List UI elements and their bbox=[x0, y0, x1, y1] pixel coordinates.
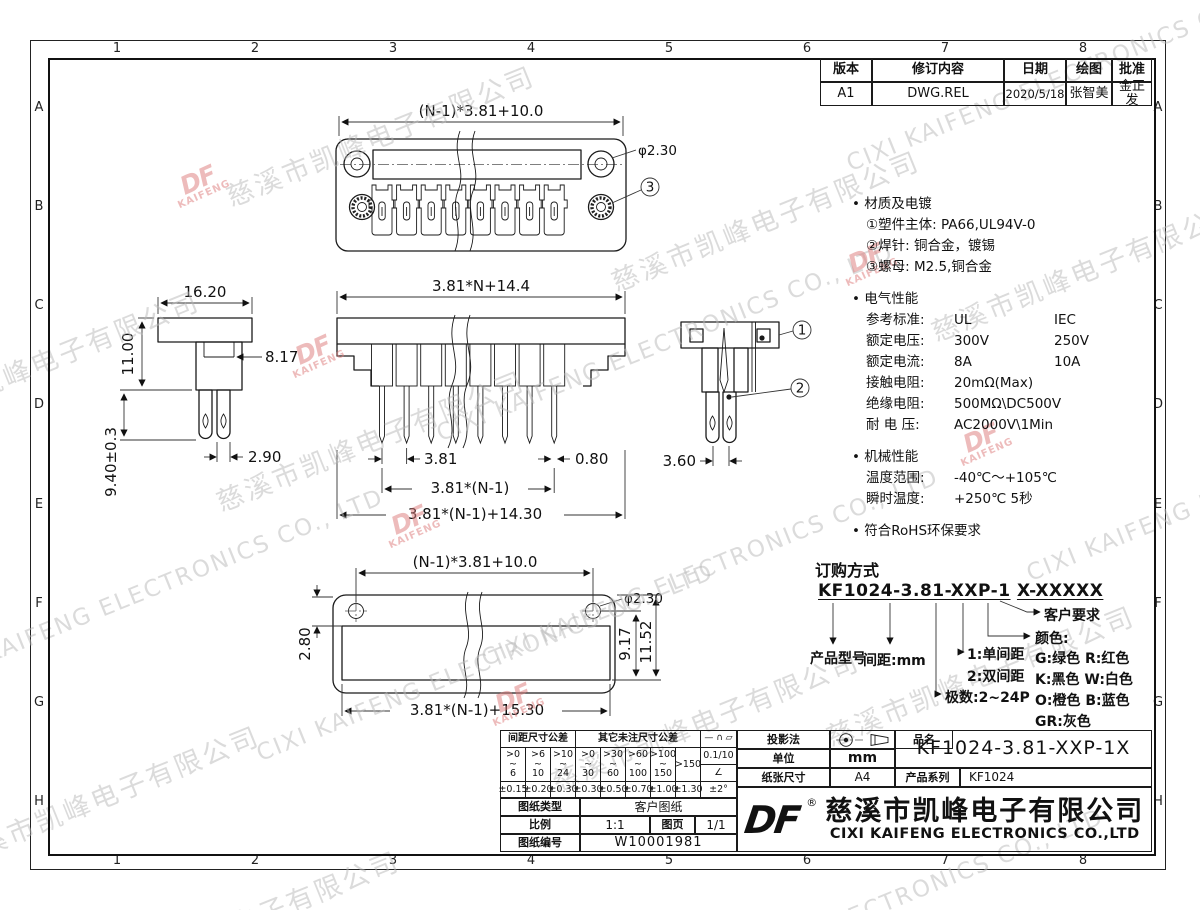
dim-section: 3.60 bbox=[663, 452, 696, 470]
tolerance-range: >150 bbox=[675, 747, 701, 782]
ordering-code-suffix: X-XXXXX bbox=[1017, 581, 1103, 601]
projection-label: 投影法 bbox=[737, 730, 830, 749]
electrical-row: 接触电阻:20mΩ(Max) bbox=[852, 373, 1154, 394]
ordering-title: 订购方式 bbox=[815, 557, 879, 581]
tolerance-value: ±0.20 bbox=[525, 781, 551, 798]
tolerance-value: ±0.30 bbox=[575, 781, 601, 798]
company-name-cn: 慈溪市凯峰电子有限公司 bbox=[825, 797, 1144, 827]
balloon-1: 1 bbox=[798, 323, 807, 339]
revision-version: A1 bbox=[820, 82, 872, 106]
revision-approved-by: 金正发 bbox=[1112, 82, 1152, 106]
spec-label: 温度范围: bbox=[866, 468, 954, 489]
tolerance-value: ±0.50 bbox=[600, 781, 626, 798]
ordering-label-customer: 客户要求 bbox=[1044, 605, 1100, 625]
angle-symbol: ∠ bbox=[700, 764, 737, 782]
dim-front-span: 3.81*(N-1) bbox=[431, 479, 510, 497]
revision-header: 版本 bbox=[820, 58, 872, 82]
material-item: ①塑件主体: PA66,UL94V-0 bbox=[852, 215, 1154, 236]
ordering-label-model: 产品型号 bbox=[810, 648, 866, 668]
revision-header: 绘图 bbox=[1066, 58, 1112, 82]
tolerance-symbols: — ∩ ▱ bbox=[700, 730, 737, 748]
dim-bottom-total: 3.81*(N-1)+15.30 bbox=[410, 701, 544, 719]
title-block: 间距尺寸公差 其它未注尺寸公差 — ∩ ▱ >0 ~ 6 >6 ~ 10 >10… bbox=[500, 730, 1152, 852]
spec-label: 绝缘电阻: bbox=[866, 394, 954, 415]
company-block: DF ® 慈溪市凯峰电子有限公司 CIXI KAIFENG ELECTRONIC… bbox=[737, 787, 1152, 852]
unit-value: mm bbox=[830, 749, 895, 768]
dim-side-top: 16.20 bbox=[184, 283, 227, 301]
revision-drawn-by: 张智美 bbox=[1066, 82, 1112, 106]
balloon-2: 2 bbox=[796, 381, 805, 397]
spec-value: 300V bbox=[954, 331, 1054, 352]
spec-value bbox=[1054, 394, 1154, 415]
series-value: KF1024 bbox=[960, 768, 1152, 787]
tolerance-range: >6 ~ 10 bbox=[525, 747, 551, 782]
view-side: 16.20 11.00 8.17 2.90 9.40±0.3 bbox=[102, 283, 298, 497]
ordering-color-option: O:橙色 B:蓝色 bbox=[1035, 690, 1130, 710]
paper-size-value: A4 bbox=[830, 768, 895, 787]
electrical-title: • 电气性能 bbox=[852, 289, 1154, 310]
paper-size-label: 纸张尺寸 bbox=[737, 768, 830, 787]
spec-value: +250℃ 5秒 bbox=[954, 489, 1154, 510]
ordering-code-main: KF1024-3.81-XXP-1 bbox=[818, 581, 1011, 601]
spec-label: 接触电阻: bbox=[866, 373, 954, 394]
drawing-number-label: 图纸编号 bbox=[500, 834, 580, 852]
part-name-label: 品名 bbox=[895, 730, 953, 749]
electrical-row: 耐 电 压:AC2000V\1Min bbox=[852, 415, 1154, 436]
tolerance-pitch-header: 间距尺寸公差 bbox=[500, 730, 576, 748]
dim-bottom-r2: 11.52 bbox=[637, 621, 655, 664]
spec-value bbox=[1054, 373, 1154, 394]
spec-value: -40℃～+105℃ bbox=[954, 468, 1154, 489]
unit-label: 单位 bbox=[737, 749, 830, 768]
ordering-label-double: 2:双间距 bbox=[967, 666, 1024, 686]
spec-label: 瞬时温度: bbox=[866, 489, 954, 510]
registered-mark: ® bbox=[806, 797, 817, 809]
material-item: ②焊针: 铜合金，镀锡 bbox=[852, 236, 1154, 257]
spec-notes: • 材质及电镀 ①塑件主体: PA66,UL94V-0 ②焊针: 铜合金，镀锡 … bbox=[852, 194, 1154, 542]
spec-label: 参考标准: bbox=[866, 310, 954, 331]
tolerance-flatness: 0.1/10 bbox=[700, 747, 737, 765]
revision-content: DWG.REL bbox=[872, 82, 1004, 106]
ordering-label-color: 颜色: bbox=[1035, 628, 1069, 648]
drawing-type-label: 图纸类型 bbox=[500, 798, 580, 816]
kaifeng-logo: DF bbox=[742, 801, 801, 839]
dim-side-pin: 2.90 bbox=[248, 448, 281, 466]
tolerance-value: ±0.15 bbox=[500, 781, 526, 798]
sheet-label: 图页 bbox=[650, 816, 695, 834]
electrical-row: 额定电压:300V250V bbox=[852, 331, 1154, 352]
tolerance-other-header: 其它未注尺寸公差 bbox=[575, 730, 701, 748]
material-title: • 材质及电镀 bbox=[852, 194, 1154, 215]
tolerance-angle: ±2° bbox=[700, 781, 737, 798]
spec-value: 500MΩ\DC500V bbox=[954, 394, 1054, 415]
revision-table: 版本 修订内容 日期 绘图 批准 A1 DWG.REL 2020/5/18 张智… bbox=[820, 58, 1152, 106]
spec-value: UL bbox=[954, 310, 1054, 331]
company-name-en: CIXI KAIFENG ELECTRONICS CO.,LTD bbox=[830, 827, 1140, 842]
dim-front-top: 3.81*N+14.4 bbox=[432, 277, 530, 295]
sheet-value: 1/1 bbox=[695, 816, 737, 834]
tolerance-value: ±0.30 bbox=[550, 781, 576, 798]
dim-bottom-top: (N-1)*3.81+10.0 bbox=[413, 553, 538, 571]
spec-value: 20mΩ(Max) bbox=[954, 373, 1054, 394]
view-front: 3.81*N+14.4 3.81 0.80 3.81*(N-1) 3.81*(N… bbox=[337, 277, 625, 523]
mechanical-row: 温度范围:-40℃～+105℃ bbox=[852, 468, 1154, 489]
spec-label: 额定电流: bbox=[866, 352, 954, 373]
tolerance-range: >0 ~ 30 bbox=[575, 747, 601, 782]
tolerance-range: >0 ~ 6 bbox=[500, 747, 526, 782]
ordering-code: KF1024-3.81-XXP-1 X-XXXXX bbox=[818, 581, 1103, 601]
revision-header: 修订内容 bbox=[872, 58, 1004, 82]
dim-plan-hole: φ2.30 bbox=[638, 143, 677, 159]
tolerance-range: >60 ~ 100 bbox=[625, 747, 651, 782]
ordering-label-pitch: 间距:mm bbox=[863, 650, 926, 670]
dim-side-inner: 8.17 bbox=[265, 348, 298, 366]
spec-value: AC2000V\1Min bbox=[954, 415, 1054, 436]
series-label: 产品系列 bbox=[895, 768, 960, 787]
spec-label: 耐 电 压: bbox=[866, 415, 954, 436]
material-item: ③螺母: M2.5,铜合金 bbox=[852, 257, 1154, 278]
spec-value bbox=[1054, 415, 1154, 436]
electrical-row: 绝缘电阻:500MΩ\DC500V bbox=[852, 394, 1154, 415]
mechanical-row: 瞬时温度:+250℃ 5秒 bbox=[852, 489, 1154, 510]
dim-front-pitch: 3.81 bbox=[424, 450, 457, 468]
drawing-sheet: 1 2 3 4 5 6 7 8 1 2 3 4 5 6 7 8 A B C D … bbox=[0, 0, 1200, 910]
tolerance-value: ±0.70 bbox=[625, 781, 651, 798]
scale-label: 比例 bbox=[500, 816, 580, 834]
spec-label: 额定电压: bbox=[866, 331, 954, 352]
view-plan: (N-1)*3.81+10.0 φ2.30 3 bbox=[336, 102, 677, 251]
tolerance-range: >10 ~ 24 bbox=[550, 747, 576, 782]
balloon-3: 3 bbox=[646, 180, 655, 196]
tolerance-range: >100 ~ 150 bbox=[650, 747, 676, 782]
revision-header: 日期 bbox=[1004, 58, 1066, 82]
revision-date: 2020/5/18 bbox=[1004, 82, 1066, 106]
electrical-row: 参考标准:ULIEC bbox=[852, 310, 1154, 331]
view-section: 1 2 3.60 bbox=[663, 321, 811, 470]
spec-value: 8A bbox=[954, 352, 1054, 373]
dim-side-height2: 9.40±0.3 bbox=[102, 427, 120, 497]
spec-value: IEC bbox=[1054, 310, 1154, 331]
ordering-color-option: GR:灰色 bbox=[1035, 711, 1091, 731]
ordering-color-option: K:黑色 W:白色 bbox=[1035, 669, 1133, 689]
rohs-note: • 符合RoHS环保要求 bbox=[852, 521, 1154, 542]
tolerance-value: ±1.00 bbox=[650, 781, 676, 798]
tolerance-range: >30 ~ 60 bbox=[600, 747, 626, 782]
ordering-color-option: G:绿色 R:红色 bbox=[1035, 648, 1129, 668]
projection-symbol-icon bbox=[830, 730, 895, 749]
dim-bottom-r1: 9.17 bbox=[616, 627, 634, 660]
tolerance-value: ±1.30 bbox=[675, 781, 701, 798]
scale-value: 1:1 bbox=[580, 816, 650, 834]
electrical-row: 额定电流:8A10A bbox=[852, 352, 1154, 373]
drawing-type-value: 客户图纸 bbox=[580, 798, 737, 816]
dim-side-height1: 11.00 bbox=[119, 333, 137, 376]
drawing-number-value: W10001981 bbox=[580, 834, 737, 852]
spec-value: 250V bbox=[1054, 331, 1154, 352]
ordering-label-poles: 极数:2~24P bbox=[945, 687, 1030, 707]
view-bottom: (N-1)*3.81+10.0 φ2.30 2.80 9.17 11.52 3.… bbox=[296, 553, 663, 719]
mechanical-title: • 机械性能 bbox=[852, 447, 1154, 468]
dim-bottom-hole: φ2.30 bbox=[624, 591, 663, 607]
ordering-label-single: 1:单间距 bbox=[967, 644, 1024, 664]
spec-value: 10A bbox=[1054, 352, 1154, 373]
dim-bottom-left: 2.80 bbox=[296, 627, 314, 660]
dim-plan-width: (N-1)*3.81+10.0 bbox=[419, 102, 544, 120]
dim-front-total: 3.81*(N-1)+14.30 bbox=[408, 505, 542, 523]
dim-front-pin: 0.80 bbox=[575, 450, 608, 468]
